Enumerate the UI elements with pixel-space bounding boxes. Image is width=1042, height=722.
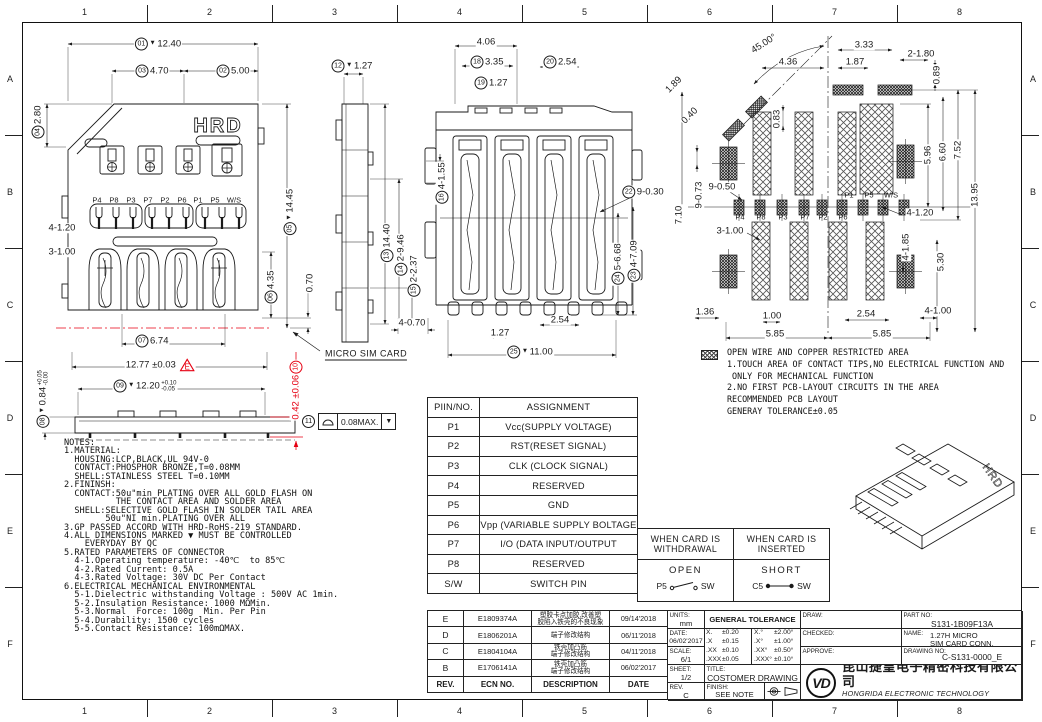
dim-1.87: 1.87 (845, 57, 866, 67)
pin-table-cell: S/W (428, 574, 480, 594)
grid-col-top-8: 8 (957, 7, 962, 17)
pin-table-cell: CLK (CLOCK SIGNAL) (480, 456, 638, 476)
dim-text: 4-1.20 (907, 208, 934, 218)
balloon-14: 14 (395, 263, 408, 276)
dim-6.60: 6.60 (938, 142, 948, 163)
revision-row: BE1706141A铁壳加凸筋 端子修改结构06/02'2017 (428, 660, 668, 676)
grid-col-bottom-7: 7 (832, 706, 837, 716)
grid-col-bottom-4: 4 (457, 706, 462, 716)
balloon-24: 24 (612, 272, 625, 285)
revision-ecn: E1804104A (464, 643, 532, 659)
grid-row-right-A: A (1030, 74, 1036, 84)
notes-block: NOTES:1.MATERIAL: HOUSING:LCP,BLACK,UL 9… (64, 439, 338, 633)
controlled-dim-mark: ▼ (40, 407, 47, 413)
dim-text: 4-1.00 (925, 306, 952, 316)
border-tick (1022, 135, 1039, 136)
pin-table-cell: Vpp (VARIABLE SUPPLY BOLTAGE (480, 515, 638, 535)
dim-text: P2 (160, 196, 169, 204)
date-cell: DATE: 06/02'2017 (668, 629, 705, 647)
border-tick (772, 5, 773, 22)
dim-9-0.73: 9-0.73 (694, 181, 704, 210)
pin-table-cell: Vcc(SUPPLY VOLTAGE) (480, 417, 638, 437)
dim-text: P6 (177, 196, 186, 204)
legend-line: 1.TOUCH AREA OF CONTACT TIPS,NO ELECTRIC… (727, 359, 1004, 371)
dim-text: P2 (818, 213, 827, 221)
dim-3.33: 3.33 (854, 40, 875, 50)
dim-text: P5 (210, 196, 219, 204)
revision-desc: 铁壳加凸筋 端子修改结构 (532, 643, 610, 659)
dim-1.27: 12▼1.27 (331, 60, 374, 73)
border-tick (897, 5, 898, 22)
grid-col-bottom-3: 3 (332, 706, 337, 716)
switch-node-label: SW (797, 581, 811, 591)
dim-text: 14.40 (382, 224, 392, 248)
dim-5.30: 5.30 (936, 252, 946, 273)
pin-table-cell: I/O (DATA INPUT/OUTPUT (480, 535, 638, 555)
dim-text: 7.10 (674, 206, 684, 225)
tolerance-value: ±0.20 (722, 629, 752, 638)
tolerance-value: ±2.00° (774, 629, 801, 638)
dim-W-S: W/S (884, 191, 898, 199)
dim-1.00: 1.00 (762, 311, 783, 321)
draw-cell: DRAW: (801, 611, 902, 629)
dim-text: 1.87 (846, 57, 865, 67)
border-tick (1022, 587, 1039, 588)
pin-table-cell: P3 (428, 456, 480, 476)
revision-date: 06/11'2018 (610, 627, 668, 643)
tolerance-value: ±0.50° (774, 647, 801, 656)
switch-inserted-state: SHORT (734, 565, 829, 576)
revision-table: EE1809374A塑胶卡点加胶,改善塑 胶陷入铁壳的不良现象09/14'201… (427, 610, 668, 693)
dim-5.96: 5.96 (923, 145, 933, 166)
pin-table-row: P6Vpp (VARIABLE SUPPLY BOLTAGE (428, 515, 638, 535)
tolerance-value: .X (706, 638, 722, 647)
dim-12.20: 09▼12.20+0.10-0.05 (113, 380, 178, 393)
hrd-logo-iso-view: HRD (980, 462, 1005, 491)
pin-table-row: P4RESERVED (428, 476, 638, 496)
drawing-sheet: HRD (0, 0, 1042, 722)
legend-line: ONLY FOR MECHANICAL FUNCTION (727, 371, 1004, 383)
dim-5.00: 025.00 (216, 65, 251, 78)
dim-text: 9-0.73 (694, 182, 704, 209)
grid-row-right-F: F (1030, 639, 1036, 649)
dim-P5: P5 (210, 196, 219, 204)
qc-mark: ▼ (381, 414, 395, 429)
general-tolerance-header: GENERAL TOLERANCE (705, 611, 801, 629)
tolerance-value: ±0.10 (722, 647, 752, 656)
dim-P2: P2 (818, 213, 827, 221)
pin-table-cell: P6 (428, 515, 480, 535)
dim-2.54: 2.54 (550, 315, 571, 325)
dim-text: P1 (844, 191, 853, 199)
pin-table-cell: P1 (428, 417, 480, 437)
dim-P3: P3 (126, 196, 135, 204)
note-line: 5-5.Contact Resistance: 100mΩMAX. (64, 625, 338, 633)
grid-row-right-B: B (1030, 187, 1036, 197)
border-tick (1022, 474, 1039, 475)
dim-tolerance: +0.05-0.00 (37, 370, 49, 385)
dim-text: 3.33 (855, 40, 874, 50)
dim-text: 1.00 (763, 311, 782, 321)
grid-col-top-5: 5 (582, 7, 587, 17)
switch-inserted-column: WHEN CARD IS INSERTED SHORT C5 SW (733, 529, 829, 601)
dim-P2: P2 (160, 196, 169, 204)
grid-row-right-C: C (1030, 300, 1037, 310)
tolerance-value: ±1.00° (774, 638, 801, 647)
dim-text: 11.00 (530, 347, 553, 357)
flatness-callout: 11 0.08MAX. ▼ (302, 413, 396, 430)
dim-text: 2-9.46 (396, 234, 406, 261)
grid-col-bottom-8: 8 (957, 706, 962, 716)
dim-text: 2-2.37 (409, 255, 419, 282)
grid-col-top-1: 1 (82, 7, 87, 17)
dim-0.89: 0.89 (932, 65, 942, 86)
dim-text: 0.70 (305, 274, 315, 293)
dim-text: W/S (227, 196, 241, 204)
switch-inserted-title: WHEN CARD IS INSERTED (734, 529, 829, 560)
dim-text: 4-1.20 (49, 223, 76, 233)
grid-col-bottom-1: 1 (82, 706, 87, 716)
dim-text: 9-0.50 (709, 182, 736, 192)
drawing-no-cell: DRAWING NO: C-S131-0000_E (902, 647, 1023, 665)
legend-line: GENERAY TOLERANCE±0.05 (727, 406, 1004, 418)
revision-desc: 端子修改结构 (532, 627, 610, 643)
revision-ecn: E1809374A (464, 611, 532, 627)
balloon-11: 11 (302, 415, 315, 428)
border-tick (772, 700, 773, 717)
balloon-09: 09 (114, 380, 127, 393)
balloon-02: 02 (217, 65, 230, 78)
balloon-23: 23 (628, 269, 641, 282)
dim-text: P6 (838, 213, 847, 221)
border-tick (397, 5, 398, 22)
switch-node-label: P5 (656, 581, 666, 591)
border-tick (5, 135, 22, 136)
name-cell: NAME: 1.27H MICRO SIM CARD CONN. (902, 629, 1023, 647)
balloon-01: 01 (135, 38, 148, 51)
dim-12.40: 01▼12.40 (134, 38, 182, 51)
revision-date: 04/11'2018 (610, 643, 668, 659)
border-tick (5, 248, 22, 249)
border-tick (272, 5, 273, 22)
pin-table-cell: RESERVED (480, 476, 638, 496)
grid-row-left-B: B (7, 187, 13, 197)
grid-row-right-D: D (1030, 413, 1037, 423)
border-tick (1022, 361, 1039, 362)
balloon-05: 05 (284, 222, 297, 235)
checked-cell: CHECKED: (801, 629, 902, 647)
dim-4-1.00: 4-1.00 (924, 306, 953, 316)
grid-col-top-6: 6 (707, 7, 712, 17)
closed-switch-icon (765, 580, 795, 592)
tolerance-value: ±0.15 (722, 638, 752, 647)
pin-assignment-table: PIIN/NO.ASSIGNMENT P1Vcc(SUPPLY VOLTAGE)… (427, 397, 638, 594)
switch-state-table: WHEN CARD IS WITHDRAWAL OPEN P5 SW WHEN … (637, 528, 830, 602)
pin-table-row: P8RESERVED (428, 554, 638, 574)
balloon-10: 10 (290, 360, 303, 373)
dim-P8: P8 (109, 196, 118, 204)
dim-text: 2-1.80 (908, 49, 935, 59)
dim-text: 14.45 (285, 189, 295, 213)
tolerance-value: .XXX (706, 656, 722, 665)
balloon-19: 19 (475, 77, 488, 90)
svg-text:E: E (184, 362, 189, 371)
dim-text: 4.70 (150, 66, 169, 76)
balloon-16: 16 (436, 191, 449, 204)
dim-P1: P1 (844, 191, 853, 199)
rev-cell: REV. C (668, 683, 705, 701)
dim-2.54: 2.54 (856, 309, 877, 319)
dim-text: 4-7.09 (629, 240, 639, 267)
grid-col-bottom-2: 2 (207, 706, 212, 716)
balloon-08: 08 (37, 415, 50, 428)
dim-6.74: 076.74 (135, 335, 170, 348)
controlled-dim-mark: ▼ (287, 214, 294, 220)
dim-1.36: 1.36 (695, 307, 716, 317)
dim-9-0.50: 9-0.50 (708, 182, 737, 192)
revision-rev: B (428, 660, 464, 676)
tolerance-value: X. (706, 629, 722, 638)
balloon-03: 03 (136, 65, 149, 78)
border-tick (397, 700, 398, 717)
switch-short-symbol: C5 SW (734, 580, 829, 592)
dim-text: 3.35 (485, 57, 504, 67)
balloon-15: 15 (408, 284, 421, 297)
revision-rev: C (428, 643, 464, 659)
dim-W-S: W/S (227, 196, 241, 204)
dim-text: 0.83 (772, 110, 782, 129)
dim-4-0.70: 4-0.70 (398, 318, 427, 328)
dim-text: 4-1.85 (901, 234, 911, 261)
dim-P4: P4 (92, 196, 101, 204)
dim-text: 5.85 (873, 329, 892, 339)
dim-text: 4-0.70 (399, 318, 426, 328)
revision-date: 09/14'2018 (610, 611, 668, 627)
dim-text: 5.00 (231, 66, 250, 76)
tolerance-value: .XX (706, 647, 722, 656)
dim-text: P5 (864, 191, 873, 199)
dim-4-1.55: 164-1.55 (436, 161, 449, 204)
balloon-06: 06 (265, 291, 278, 304)
view-side (336, 104, 373, 342)
dim-12.77-0.03: 12.77 ±0.03E (125, 359, 196, 372)
dim-text: P8 (109, 196, 118, 204)
border-tick (5, 474, 22, 475)
dim-text: 4.06 (477, 37, 496, 47)
tolerance-value: .XXX° (754, 656, 774, 665)
dim-0.42-0.06: 0.42 ±0.0610 (290, 359, 303, 420)
dim-2-9.46: 142-9.46 (395, 233, 408, 276)
dim-MICRO-SIM-CARD: MICRO SIM CARD (324, 350, 408, 361)
grid-col-top-3: 3 (332, 7, 337, 17)
dim-0.84: 08▼0.84+0.05-0.00 (37, 369, 50, 429)
dim-text: 9-0.30 (637, 187, 664, 197)
dim-P6: P6 (177, 196, 186, 204)
hrd-logo-top-view: HRD (193, 115, 242, 137)
dim-5-6.68: 245-6.68 (612, 242, 625, 285)
dim-text: 0.84 (38, 387, 48, 406)
dim-text: 6.74 (150, 336, 169, 346)
grid-row-left-C: C (7, 300, 14, 310)
grid-row-left-A: A (7, 74, 13, 84)
grid-col-top-7: 7 (832, 7, 837, 17)
border-tick (147, 5, 148, 22)
dim-3.35: 183.35 (470, 56, 505, 69)
dim-text: 12.40 (157, 39, 181, 49)
dim-text: 0.42 ±0.06 (291, 375, 301, 420)
view-isometric: HRD (850, 444, 1014, 549)
border-tick (5, 361, 22, 362)
dim-3-1.00: 3-1.00 (716, 226, 745, 236)
balloon-20: 20 (544, 56, 557, 69)
dim-text: 0.89 (932, 66, 942, 85)
dim-4.36: 4.36 (778, 57, 799, 67)
dim-text: 2.54 (558, 57, 577, 67)
company-cell: VD 昆山捷皇电子精密科技有限公司 HONGRIDA ELECTRONIC TE… (801, 665, 1023, 701)
view-profile (75, 411, 295, 440)
dim-13.95: 13.95 (970, 182, 980, 208)
pin-table-cell: RESERVED (480, 554, 638, 574)
tol-lower: -0.00 (43, 370, 49, 385)
datum-flag-E: E (179, 359, 194, 372)
title-cell: TITLE: COSTOMER DRAWING (705, 665, 801, 683)
open-switch-icon (669, 580, 699, 592)
finish-row: FINISH: SEE NOTE (705, 683, 801, 701)
pin-table-cell: P5 (428, 495, 480, 515)
dim-P6: P6 (838, 213, 847, 221)
dim-2-1.80: 2-1.80 (907, 49, 936, 59)
dim-text: 3-1.00 (49, 247, 76, 257)
dim-text: 4.35 (266, 271, 276, 290)
revision-desc: 塑胶卡点加胶,改善塑 胶陷入铁壳的不良现象 (532, 611, 610, 627)
border-tick (147, 700, 148, 717)
tolerance-value: ±0.05 (722, 656, 752, 665)
dim-text: 12.20 (136, 381, 160, 391)
projection-symbol-icon (764, 683, 800, 700)
dim-14.45: 05▼14.45 (284, 188, 297, 236)
balloon-07: 07 (136, 335, 149, 348)
dim-text: 1.27 (491, 328, 510, 338)
dim-text: 5.85 (766, 329, 785, 339)
pin-table-row: P3CLK (CLOCK SIGNAL) (428, 456, 638, 476)
pin-table-cell: P4 (428, 476, 480, 496)
dim-text: P8 (756, 213, 765, 221)
legend-line: 2.NO FIRST PCB-LAYOUT CIRCUITS IN THE AR… (727, 382, 1004, 394)
flatness-value: 0.08MAX. (337, 414, 381, 429)
controlled-dim-mark: ▼ (522, 349, 528, 356)
dim-4.70: 034.70 (135, 65, 170, 78)
border-tick (647, 700, 648, 717)
dim-0.83: 0.83 (772, 109, 782, 130)
dim-text: 1.27 (489, 78, 508, 88)
grid-col-top-4: 4 (457, 7, 462, 17)
units-cell: UNITS: mm (668, 611, 705, 629)
dim-2.54: 202.54 (543, 56, 578, 69)
dim-text: 6.60 (938, 143, 948, 162)
part-no-cell: PART NO: S131-1B09F13A (902, 611, 1023, 629)
border-tick (522, 5, 523, 22)
dim-P5: P5 (864, 191, 873, 199)
dim-text: 5.30 (936, 253, 946, 272)
revision-header-cell: ECN NO. (464, 676, 532, 692)
pin-table-row: P5GND (428, 495, 638, 515)
dim-text: 3-1.00 (717, 226, 744, 236)
tol-lower: -0.05 (161, 386, 176, 392)
dim-5.85: 5.85 (872, 329, 893, 339)
pin-table-header-cell: PIIN/NO. (428, 398, 480, 418)
revision-rev: D (428, 627, 464, 643)
balloon-12: 12 (332, 60, 345, 73)
micro-sim-leader (293, 332, 320, 351)
revision-ecn: E1706141A (464, 660, 532, 676)
dim-text: MICRO SIM CARD (325, 350, 407, 361)
border-tick (272, 700, 273, 717)
dim-text: 2.54 (551, 315, 570, 325)
dim-4-7.09: 234-7.09 (628, 239, 641, 282)
dim-P7: P7 (800, 213, 809, 221)
tolerance-value: .X° (754, 638, 774, 647)
revision-row: CE1804104A铁壳加凸筋 端子修改结构04/11'2018 (428, 643, 668, 659)
dim-14.40: 1314.40 (381, 223, 394, 263)
finish-cell: FINISH: SEE NOTE (705, 683, 764, 700)
grid-row-left-D: D (7, 413, 14, 423)
dim-1.27: 1.27 (490, 328, 511, 338)
switch-node-label: SW (701, 581, 715, 591)
balloon-04: 04 (32, 126, 45, 139)
grid-row-right-E: E (1030, 526, 1036, 536)
tolerance-value: ±0.10° (774, 656, 801, 665)
pin-table-cell: P2 (428, 437, 480, 457)
dim-text: P7 (143, 196, 152, 204)
dim-text: 2.80 (33, 106, 43, 125)
dim-text: P3 (778, 213, 787, 221)
restricted-area-swatch (701, 350, 718, 360)
dim-text: 1.27 (354, 61, 373, 71)
revision-desc: 铁壳加凸筋 端子修改结构 (532, 660, 610, 676)
dim-2.80: 042.80 (32, 105, 45, 140)
switch-open-symbol: P5 SW (638, 580, 733, 592)
company-name-cn: 昆山捷皇电子精密科技有限公司 (842, 665, 1022, 689)
dim-4.06: 4.06 (476, 37, 497, 47)
view-front (425, 106, 642, 315)
view-top: HRD (62, 104, 264, 310)
balloon-25: 25 (507, 346, 520, 359)
dim-text: 4.36 (779, 57, 798, 67)
legend-line: RECOMMENDED PCB LAYOUT (727, 394, 1004, 406)
pin-table-row: P1Vcc(SUPPLY VOLTAGE) (428, 417, 638, 437)
dim-4-1.20: 4-1.20 (906, 208, 935, 218)
dim-0.70: 0.70 (305, 273, 315, 294)
revision-ecn: E1806201A (464, 627, 532, 643)
tolerance-value: X.° (754, 629, 774, 638)
tolerance-value: .XX° (754, 647, 774, 656)
scale-cell: SCALE: 6/1 (668, 647, 705, 665)
dim-text: P4 (92, 196, 101, 204)
border-tick (522, 700, 523, 717)
pin-table-cell: RST(RESET SIGNAL) (480, 437, 638, 457)
controlled-dim-mark: ▼ (346, 63, 352, 70)
border-tick (647, 5, 648, 22)
revision-row: DE1806201A端子修改结构06/11'2018 (428, 627, 668, 643)
pin-table-cell: SWITCH PIN (480, 574, 638, 594)
revision-rev: E (428, 611, 464, 627)
dim-text: 13.95 (970, 183, 980, 207)
balloon-18: 18 (471, 56, 484, 69)
dim-4.35: 064.35 (265, 270, 278, 305)
dim-9-0.30: 229-0.30 (621, 186, 664, 199)
dim-11.00: 25▼11.00 (506, 346, 554, 359)
company-name-en: HONGRIDA ELECTRONIC TECHNOLOGY CO.,LTD. (842, 689, 1022, 702)
